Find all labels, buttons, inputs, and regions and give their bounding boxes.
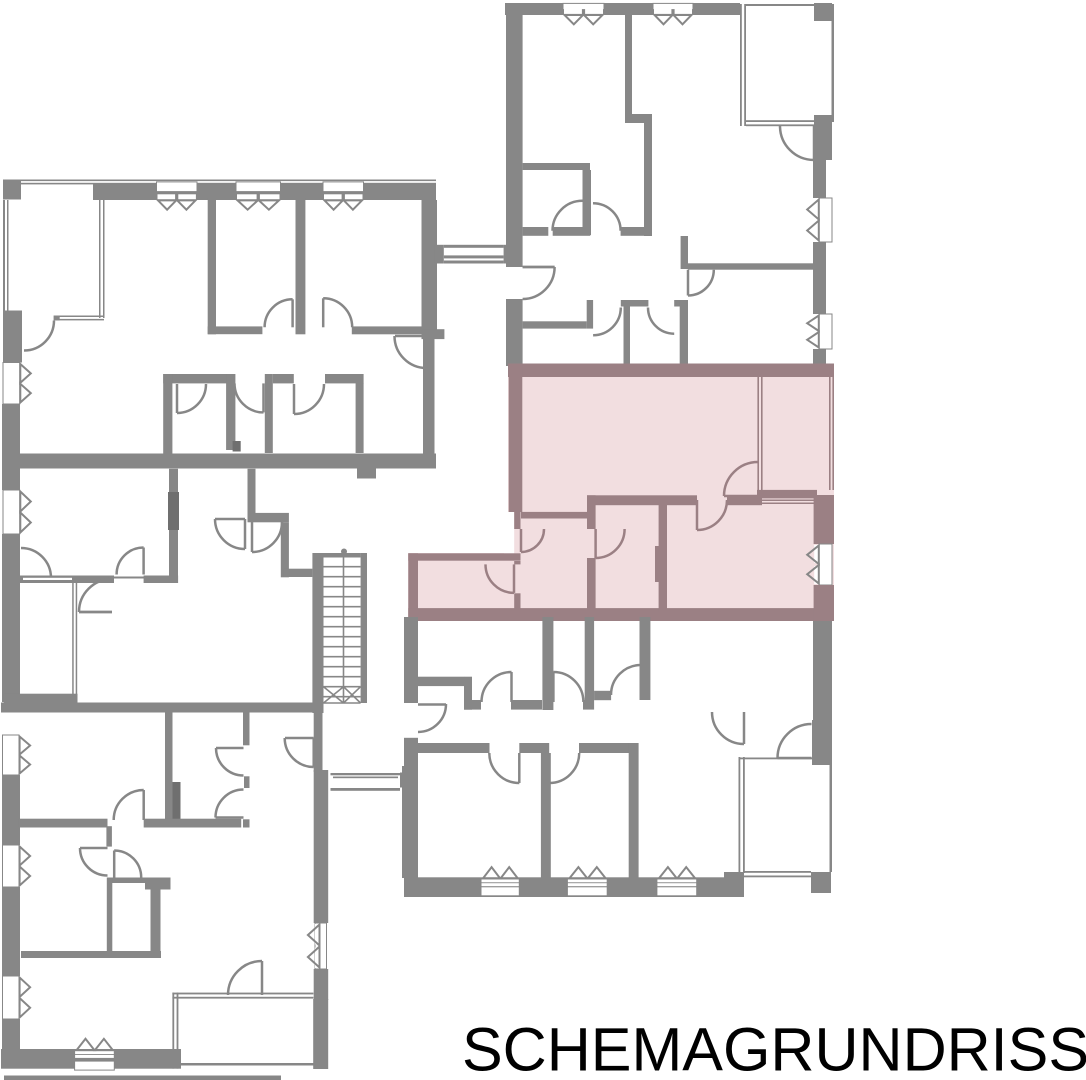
svg-text:SCHEMAGRUNDRISS: SCHEMAGRUNDRISS — [462, 1016, 1086, 1080]
